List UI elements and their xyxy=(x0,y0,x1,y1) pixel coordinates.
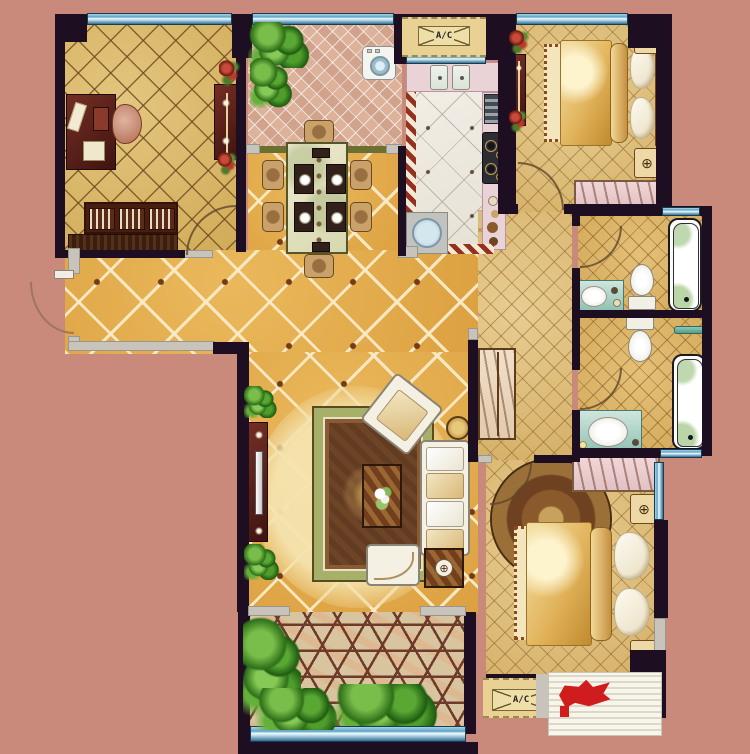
toilet-tank xyxy=(626,316,654,330)
wall-opening-jamb xyxy=(420,606,466,616)
toilet-icon xyxy=(628,264,656,312)
washer-knob-icon xyxy=(367,49,372,53)
hallway-cabinet xyxy=(478,348,516,440)
placemat xyxy=(326,164,346,194)
wall-opening-jamb xyxy=(468,328,478,340)
sofa-cushion xyxy=(426,447,464,471)
flower-plant-icon xyxy=(509,110,527,134)
plant-icon xyxy=(244,544,280,580)
plant-icon xyxy=(250,58,292,108)
toilet-bowl xyxy=(628,330,652,362)
bed xyxy=(526,522,658,646)
window xyxy=(87,13,232,25)
dining-chair xyxy=(304,254,334,278)
window xyxy=(660,449,702,458)
cabinet-lamp-icon xyxy=(222,137,230,145)
dining-chair xyxy=(262,202,284,232)
toiletry-icon xyxy=(632,439,639,446)
book-icon xyxy=(93,107,109,131)
drain-icon xyxy=(688,435,693,440)
sink-drain-icon xyxy=(438,76,442,80)
plate-icon xyxy=(299,212,311,224)
placemat xyxy=(326,202,346,232)
tv-cabinet xyxy=(248,422,268,542)
plate-icon xyxy=(299,174,311,186)
washer-door-icon xyxy=(370,56,390,76)
red-logo-mark xyxy=(560,706,569,717)
bathtub-icon xyxy=(668,218,702,312)
wall-opening-jamb xyxy=(478,455,492,463)
plant-icon xyxy=(244,386,278,418)
cabinet-lamp-icon xyxy=(255,431,263,439)
lamp-icon: ⊕ xyxy=(641,156,653,170)
books-icon xyxy=(119,208,145,230)
lamp-icon: ⊕ xyxy=(638,502,650,516)
study-bookshelf xyxy=(84,202,178,234)
sofa-cushion xyxy=(426,501,464,527)
plate-icon xyxy=(331,174,343,186)
wall-segment xyxy=(398,146,406,256)
wall-segment xyxy=(656,14,672,214)
wall-segment xyxy=(578,310,702,318)
ac-platform: A/C xyxy=(402,17,486,57)
duvet xyxy=(560,40,612,146)
flower-plant-icon xyxy=(218,152,237,177)
plant-icon xyxy=(330,684,450,726)
round-basin-icon xyxy=(412,218,442,248)
tv-icon xyxy=(255,451,263,515)
dining-chair xyxy=(262,160,284,190)
wall-segment xyxy=(534,455,572,463)
wall-segment xyxy=(654,520,668,618)
window xyxy=(654,462,664,520)
placemat xyxy=(312,242,330,252)
ac-unit-box: A/C xyxy=(418,26,470,46)
entrance-door-leaf xyxy=(54,270,74,279)
kitchen-sink-icon xyxy=(430,65,448,90)
dining-chair xyxy=(304,120,334,144)
sink-drain-icon xyxy=(460,76,464,80)
dish-icon xyxy=(488,196,498,206)
placemat xyxy=(294,202,314,232)
sink-icon xyxy=(588,417,628,447)
sofa-cushion xyxy=(426,473,464,499)
sink-icon xyxy=(581,286,607,307)
bed xyxy=(560,40,658,146)
pillow-icon xyxy=(614,532,650,580)
cube-icon xyxy=(83,141,105,161)
coffee-table xyxy=(362,464,402,528)
blanket-roll xyxy=(610,43,628,143)
hall-floor xyxy=(65,250,478,354)
wall-opening-jamb xyxy=(248,606,290,616)
drain-icon xyxy=(684,297,689,302)
wall-segment xyxy=(68,341,215,351)
toilet-icon xyxy=(626,316,654,364)
study-desk xyxy=(66,94,116,170)
toiletry-icon xyxy=(613,299,621,307)
study-cabinet xyxy=(214,84,238,160)
wall-opening-jamb xyxy=(246,144,260,154)
wall-segment xyxy=(506,204,518,214)
books-icon xyxy=(149,208,175,230)
cabinet-rail xyxy=(497,352,499,436)
sofa xyxy=(420,440,470,556)
lamp-icon: ⊕ xyxy=(439,562,448,575)
placemat xyxy=(294,164,314,194)
toilet-bowl xyxy=(630,264,654,296)
wall-segment xyxy=(702,210,712,456)
ac-label: A/C xyxy=(434,31,454,41)
flower-plant-icon xyxy=(509,30,530,56)
cabinet-lamp-icon xyxy=(255,527,263,535)
cabinet-lamp-icon xyxy=(516,65,522,71)
cabinet-lamp-icon xyxy=(222,99,230,107)
bathtub-icon xyxy=(672,354,706,450)
round-side-table xyxy=(446,416,470,440)
pillow-icon xyxy=(630,97,655,139)
wall-segment xyxy=(464,612,476,734)
window xyxy=(662,207,700,216)
dining-chair xyxy=(350,160,372,190)
burner-icon xyxy=(485,163,497,175)
bathroom-vanity xyxy=(576,280,624,312)
dining-chair xyxy=(350,202,372,232)
dining-table xyxy=(286,142,348,254)
floor-plan: ⊕ ⊕ xyxy=(0,0,750,754)
entrance-door-arc xyxy=(30,282,74,334)
bathtub-inner xyxy=(677,359,703,447)
toiletry-icon xyxy=(611,287,618,294)
side-table: ⊕ xyxy=(424,548,464,588)
flower-centerpiece-icon xyxy=(373,484,393,512)
wall-segment xyxy=(238,742,478,754)
burner-icon xyxy=(485,140,497,152)
washer-knob-icon xyxy=(375,49,380,53)
duvet xyxy=(526,522,592,646)
pillow-icon xyxy=(614,588,650,636)
books-icon xyxy=(89,208,115,230)
wardrobe xyxy=(572,456,660,492)
dish-icon xyxy=(487,222,498,233)
armchair-cushion xyxy=(376,389,429,442)
placemat xyxy=(312,148,330,158)
lamp-base-icon: ⊕ xyxy=(435,559,453,577)
chaise-bench xyxy=(366,544,420,586)
plate-icon xyxy=(331,212,343,224)
paper-icon xyxy=(67,102,87,132)
wall-segment xyxy=(55,22,65,258)
washing-machine-icon xyxy=(362,46,396,80)
flower-plant-icon xyxy=(219,60,240,88)
table-runner xyxy=(314,152,324,248)
wall-segment xyxy=(468,338,478,462)
kitchen-sink-icon xyxy=(452,65,470,90)
blanket-roll xyxy=(590,527,612,641)
window xyxy=(516,13,628,25)
bench-curve xyxy=(374,552,414,580)
wall-segment xyxy=(65,250,185,258)
toilet-tank xyxy=(628,296,656,310)
wall-segment xyxy=(536,674,548,718)
ac-label: A/C xyxy=(511,695,531,705)
wall-segment xyxy=(572,210,580,226)
wall-segment xyxy=(572,268,580,370)
